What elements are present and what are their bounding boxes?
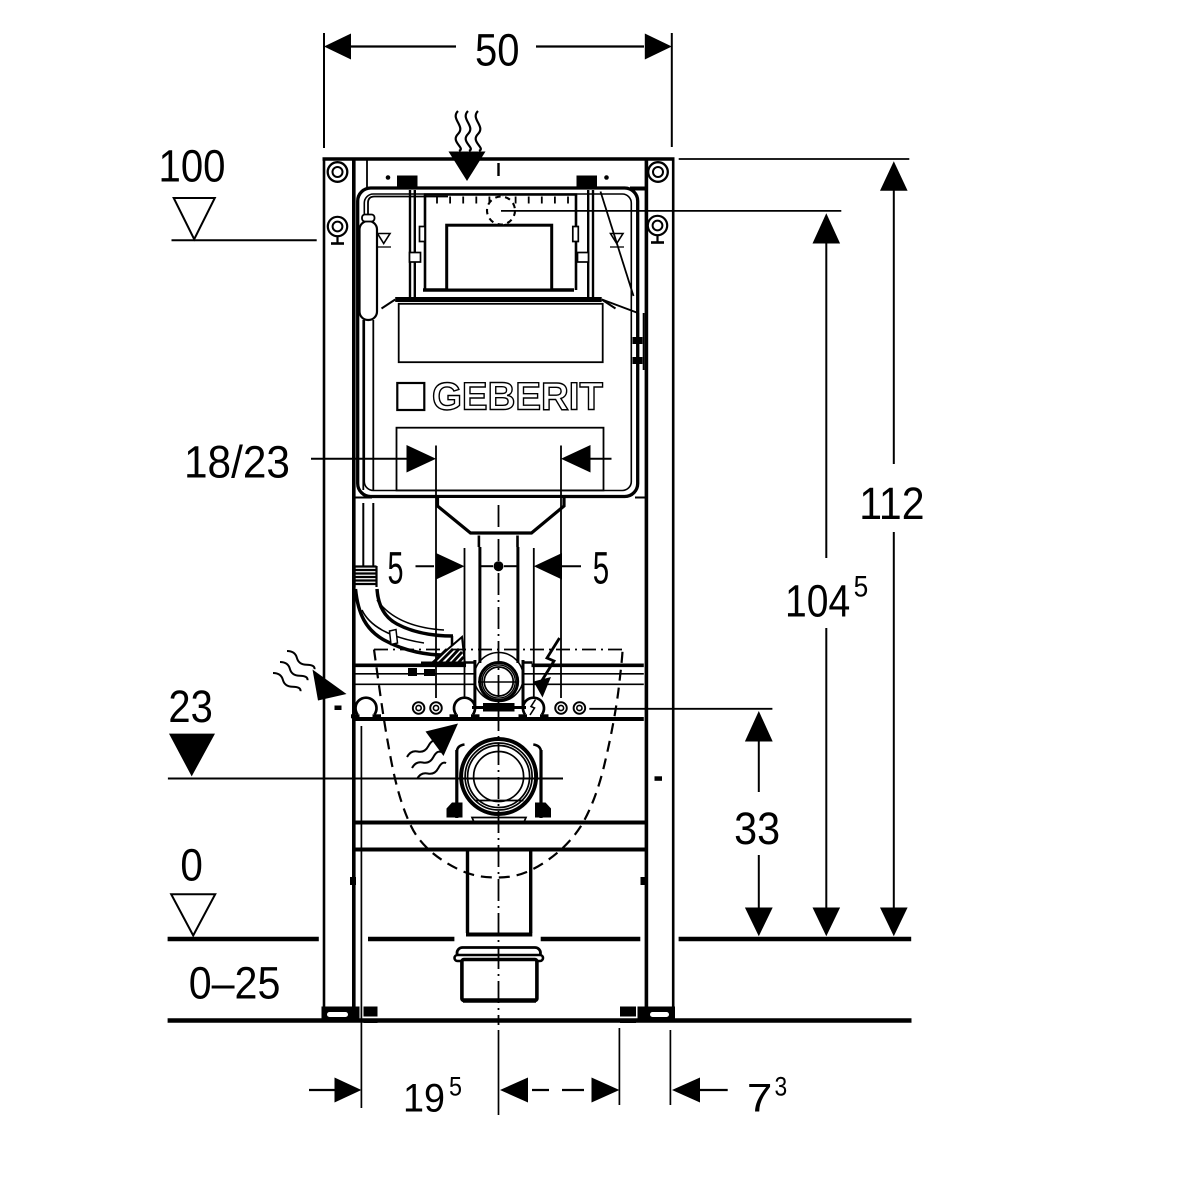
- svg-text:5: 5: [388, 543, 404, 594]
- svg-text:112: 112: [859, 478, 924, 529]
- svg-text:GEBERIT: GEBERIT: [432, 376, 603, 419]
- svg-text:100: 100: [159, 141, 226, 192]
- svg-text:5: 5: [854, 571, 869, 604]
- svg-text:18/23: 18/23: [184, 437, 290, 488]
- svg-text:0: 0: [180, 840, 203, 891]
- svg-text:5: 5: [449, 1072, 462, 1102]
- svg-text:19: 19: [403, 1077, 445, 1121]
- svg-text:33: 33: [734, 803, 780, 854]
- svg-text:50: 50: [475, 25, 520, 76]
- svg-text:23: 23: [168, 681, 212, 732]
- svg-text:7: 7: [747, 1077, 773, 1121]
- svg-text:0–25: 0–25: [189, 958, 281, 1009]
- svg-text:5: 5: [593, 543, 609, 594]
- svg-text:3: 3: [775, 1072, 788, 1102]
- svg-text:104: 104: [785, 576, 850, 627]
